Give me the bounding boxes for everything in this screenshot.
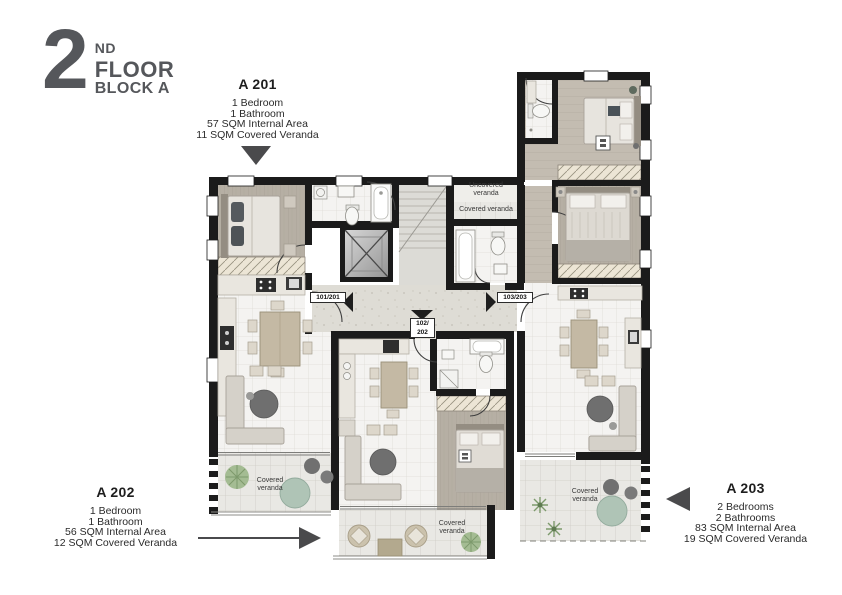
room-label-covered-veranda-a201: Covered veranda [250,477,290,492]
unit-label-a201: A 201 1 Bedroom 1 Bathroom 57 SQM Intern… [160,76,355,140]
mid-toilet [491,237,505,255]
door-label-line: 202 [412,329,433,338]
unit-label-a202: A 202 1 Bedroom 1 Bathroom 56 SQM Intern… [18,484,213,548]
unit-id: A 202 [18,484,213,500]
unit-line: 19 SQM Covered Veranda [648,534,842,545]
a202-coffee-table [370,449,396,475]
stairs-floor [399,185,446,285]
elevator [345,227,388,277]
a203-coffee-table [587,396,613,422]
pointer-arrow-a201-icon [241,146,271,165]
unit-line: 11 SQM Covered Veranda [160,130,355,141]
pointer-arrow-a202-icon [299,527,321,549]
door-label-line: 102/ [412,320,433,329]
a203-dining-table [571,320,597,368]
door-label-101-201: 101/201 [310,292,346,303]
a203-wardrobe1 [558,165,641,180]
room-label-covered-veranda-mid: Covered veranda [450,206,522,214]
room-label-covered-veranda-a202: Covered veranda [432,520,472,535]
a201-toilet [346,207,359,225]
a201-bed [221,194,228,258]
floor-number: 2 [42,26,87,98]
a203-bed2 [556,187,640,261]
room-label-uncovered-veranda: Uncovered veranda [458,182,514,197]
veranda-table [378,539,402,556]
a203-toilet [533,105,550,118]
pointer-arrow-a203-icon [666,487,690,511]
unit-line: 1 Bedroom [18,506,213,517]
unit-line: 56 SQM Internal Area [18,527,213,538]
a201-coffee-table [250,390,278,418]
door-label-102-202: 102/ 202 [410,318,435,338]
unit-id: A 201 [160,76,355,92]
unit-line: 83 SQM Internal Area [648,523,842,534]
floor-ordinal: ND [95,40,175,56]
pointer-line-a202 [198,537,299,539]
room-label-covered-veranda-a203: Covered veranda [565,488,605,503]
a202-toilet [480,356,493,373]
unit-line: 1 Bedroom [160,98,355,109]
unit-line: 57 SQM Internal Area [160,119,355,130]
unit-line: 12 SQM Covered Veranda [18,538,213,549]
a202-bed [456,424,504,492]
a203-wardrobe2 [558,264,641,278]
a202-dining-table [381,362,407,408]
floor-plan-page: { "header": { "floor_number": "2", "floo… [0,0,842,595]
a201-wardrobe [218,257,305,275]
floor-title: 2 ND FLOOR BLOCK A [42,26,174,98]
a202-wardrobe [437,396,506,411]
door-label-103-203: 103/203 [497,292,533,303]
